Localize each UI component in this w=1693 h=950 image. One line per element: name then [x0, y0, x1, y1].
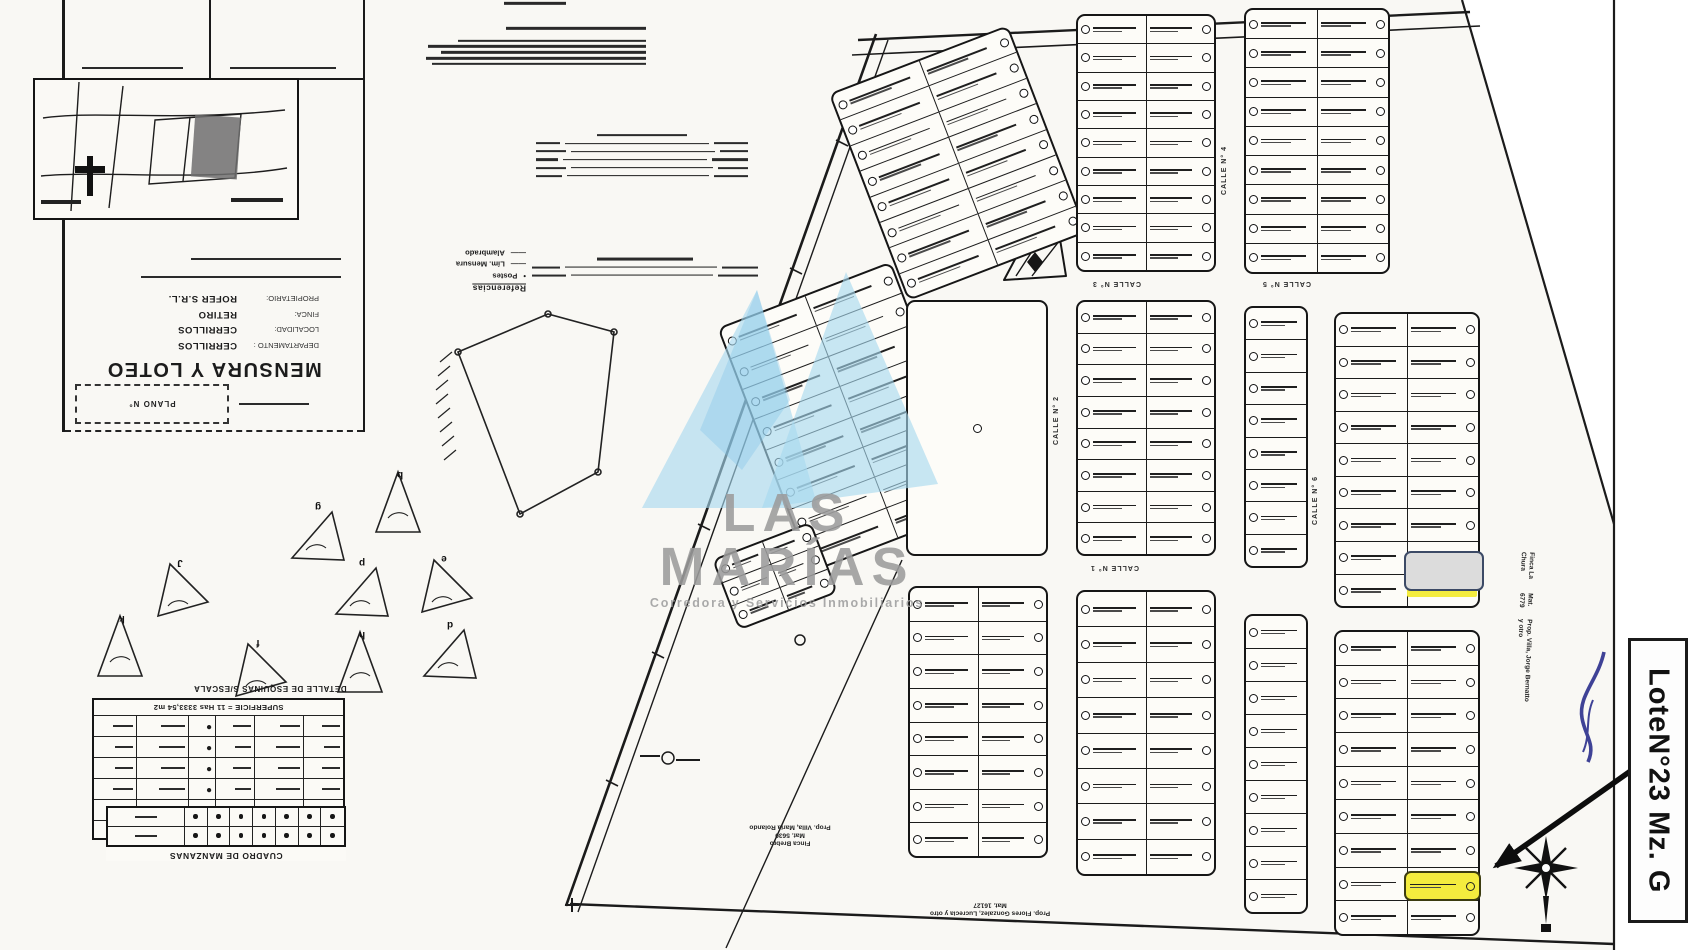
svg-text:J: J: [177, 557, 183, 568]
legend-label: Postes: [492, 272, 517, 281]
field-value: RETIRO: [198, 309, 237, 320]
legend-symbol: •: [523, 272, 526, 281]
subject-parcel-hatch: [191, 114, 241, 179]
top-strip-cell: [65, 0, 211, 78]
street-label: CALLE N° 2: [1053, 396, 1060, 445]
field-label: PROPIETARIO:: [245, 295, 319, 304]
corner-detail-sketch: p: [330, 554, 394, 628]
street-label: CALLE N° 4: [1221, 146, 1228, 195]
legend-label: Lím. Mensura: [456, 260, 505, 269]
survey-data-group: [536, 128, 748, 183]
svg-text:b: b: [397, 469, 403, 480]
field-label: DEPARTAMENTO :: [245, 341, 319, 350]
svg-text:d: d: [447, 619, 453, 630]
note-line: Mat. 16127: [880, 900, 1100, 908]
corner-detail-sketch: J: [148, 554, 212, 628]
plano-label: PLANO N°: [128, 400, 175, 409]
street-label: CALLE N° 6: [1312, 476, 1319, 525]
details-caption: DETALLE DE ESQUINAS S/ESCALA: [150, 684, 390, 693]
svg-text:k: k: [119, 613, 125, 624]
triangle-block: [1004, 190, 1066, 280]
scanned-survey-plan: PLANO N° MENSURA Y LOTEO DEPARTAMENTO :C…: [0, 0, 1693, 950]
plan-title: MENSURA Y LOTEO: [75, 357, 353, 380]
note-line: Prop. Flores Gonzalez, Lucrecia y otro: [880, 908, 1100, 916]
legend-symbol: ——: [511, 249, 526, 258]
parcel-sketch: [436, 311, 617, 517]
note-line: Mat. 6779: [1516, 592, 1533, 617]
survey-data-group: [532, 252, 758, 283]
lot-scribble: [1410, 884, 1463, 889]
note-line: Prop. Villa, Jorge Bernatto y otro: [1513, 618, 1532, 702]
location-inset-map: [33, 78, 299, 220]
superficie-row: SUPERFICIE = 11 Has 3333,54 m2: [93, 699, 344, 716]
svg-text:f: f: [256, 637, 260, 648]
inset-sketch: [35, 80, 293, 213]
church-cross-icon: [75, 156, 105, 196]
svg-text:h: h: [359, 629, 365, 640]
adjacent-parcel-note: Prop. Flores Gonzalez, Lucrecia y otro M…: [880, 900, 1100, 916]
street-label: CALLE N° 1: [1090, 564, 1139, 571]
field-value: ROFER S.R.L.: [168, 294, 237, 305]
corner-detail-sketch: b: [368, 466, 432, 540]
corner-detail-sketch: f: [226, 634, 290, 708]
manzanas-table: CUADRO DE MANZANAS: [106, 806, 346, 861]
top-right-margin: [1462, 0, 1693, 524]
adjacent-parcel-note: Finca Brebro Mat. 5630 Prop. Villa, Marí…: [742, 822, 838, 847]
note-line: Finca Brebro: [742, 838, 838, 846]
top-strip-cell: [211, 0, 363, 78]
title-block-top-strip: [65, 0, 363, 80]
field-label: LOCALIDAD:: [245, 326, 319, 335]
legend-title: Referencias: [392, 284, 526, 294]
svg-text:e: e: [441, 553, 447, 564]
note-line: Prop. Villa, María Rolando: [742, 822, 838, 830]
title-block-text: PLANO N° MENSURA Y LOTEO DEPARTAMENTO :C…: [65, 218, 363, 432]
plano-number-box: PLANO N°: [75, 384, 229, 424]
lot-annotation-label: LoteN°23 Mz. G: [1642, 668, 1675, 893]
svg-text:p: p: [359, 557, 365, 568]
street-label: CALLE N° 3: [1092, 280, 1141, 287]
manzanas-table-title: CUADRO DE MANZANAS: [106, 847, 346, 861]
legend-symbol: ——: [511, 260, 526, 269]
note-line: Finca La Chura: [1517, 552, 1535, 591]
note-line: Mat. 5630: [742, 830, 838, 838]
lot-annotation-box: LoteN°23 Mz. G: [1628, 638, 1688, 923]
covered-lot-marker: [1404, 551, 1484, 591]
legend-label: Alambrado: [465, 249, 505, 258]
highlighted-lot-23: [1404, 871, 1481, 901]
corner-detail-sketch: d: [418, 616, 482, 690]
lot-number-circle: [1466, 882, 1475, 891]
svg-text:g: g: [315, 501, 321, 512]
references-legend: Referencias •Postes ——Lím. Mensura ——Ala…: [392, 246, 526, 294]
parcel-markers: [565, 635, 805, 912]
field-value: CERRILLOS: [178, 325, 237, 336]
corner-detail-sketch: e: [412, 550, 476, 624]
field-label: FINCA:: [245, 310, 319, 319]
street-label: CALLE N° 5: [1262, 280, 1311, 287]
notes-block: [424, 2, 646, 69]
corner-detail-sketch: k: [90, 610, 154, 684]
field-value: CERRILLOS: [178, 340, 237, 351]
